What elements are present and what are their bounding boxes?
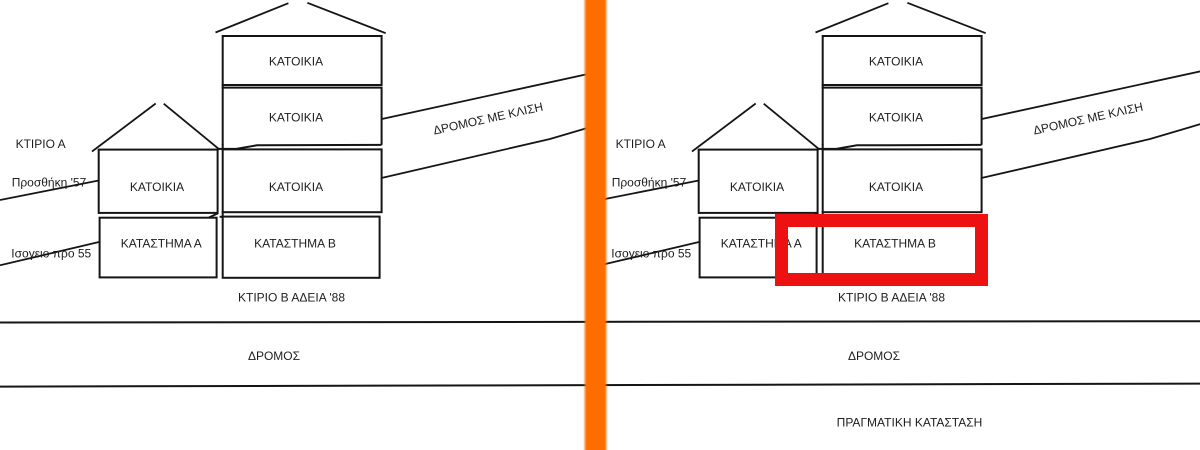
- svg-text:ΠΡΑΓΜΑΤΙΚΗ ΚΑΤΑΣΤΑΣΗ: ΠΡΑΓΜΑΤΙΚΗ ΚΑΤΑΣΤΑΣΗ: [837, 415, 983, 429]
